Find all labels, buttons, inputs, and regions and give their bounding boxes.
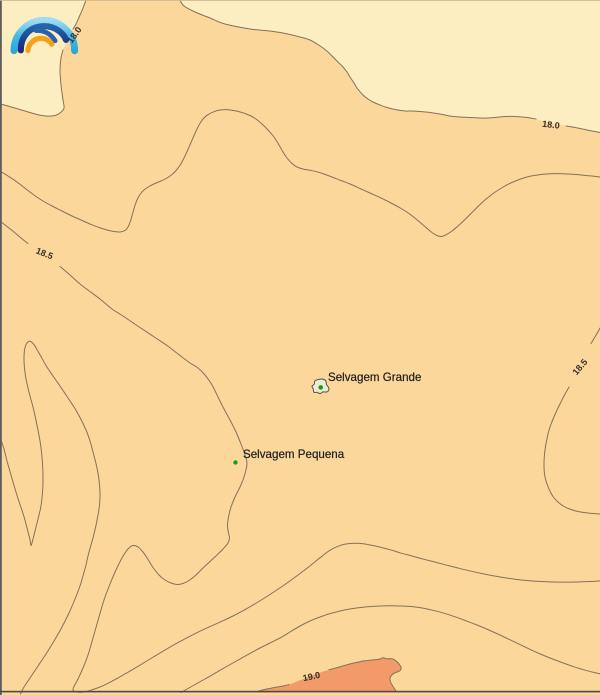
- svg-text:18.0: 18.0: [542, 119, 561, 131]
- svg-text:Selvagem Grande: Selvagem Grande: [328, 371, 421, 384]
- svg-text:Selvagem Pequena: Selvagem Pequena: [243, 448, 345, 461]
